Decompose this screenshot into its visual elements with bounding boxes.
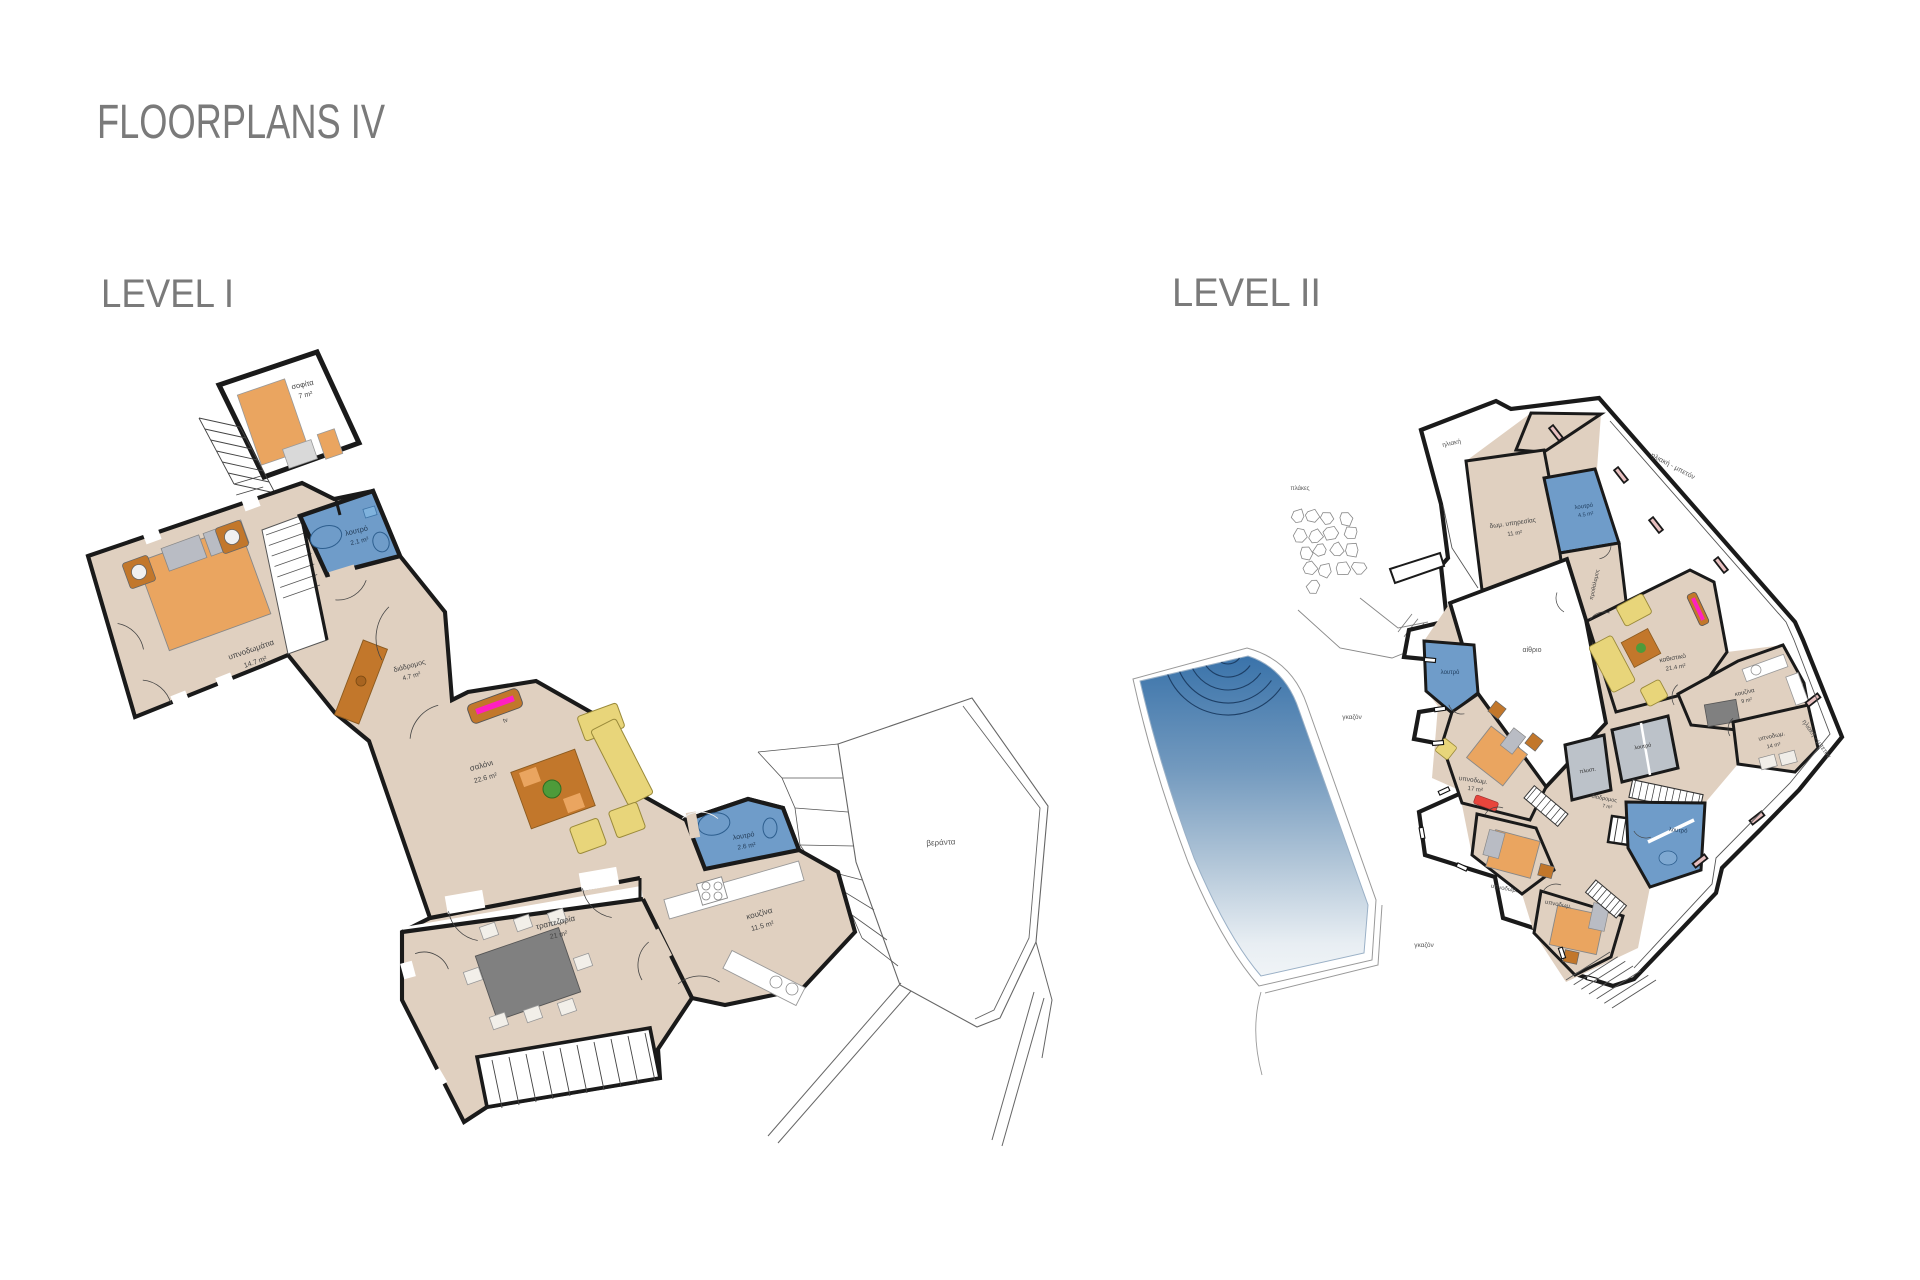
svg-text:αίθριο: αίθριο <box>1523 646 1542 654</box>
svg-text:γκαζόν: γκαζόν <box>1414 941 1433 949</box>
svg-text:FLOORPLANS IV: FLOORPLANS IV <box>97 95 385 149</box>
svg-text:βεράντα: βεράντα <box>926 837 956 848</box>
svg-text:LEVEL II: LEVEL II <box>1172 271 1321 315</box>
svg-text:πλάκες: πλάκες <box>1290 485 1309 492</box>
svg-text:γκαζόν: γκαζόν <box>1342 713 1361 721</box>
svg-text:λουτρό: λουτρό <box>1441 669 1460 676</box>
svg-text:LEVEL I: LEVEL I <box>101 272 234 316</box>
